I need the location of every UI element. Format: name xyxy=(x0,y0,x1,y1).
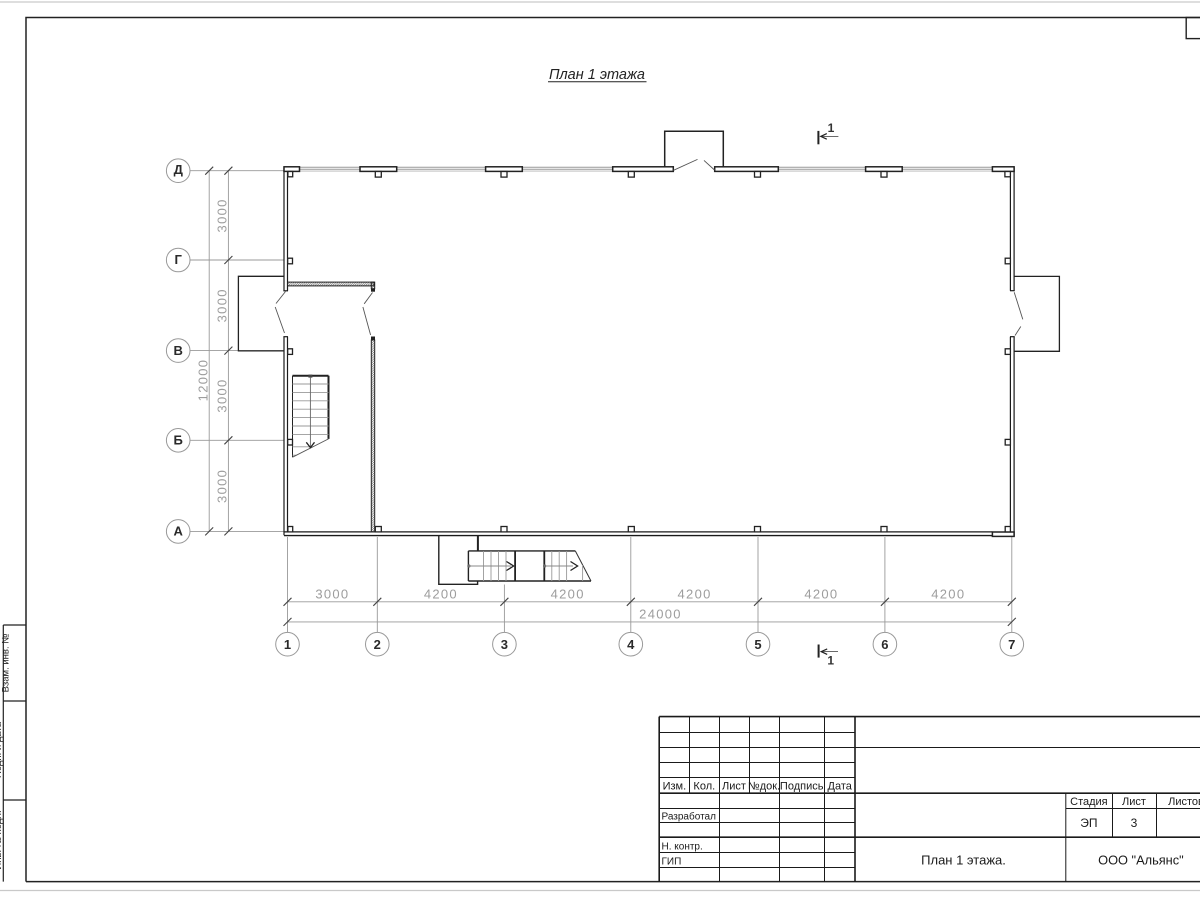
svg-text:План 1 этажа: План 1 этажа xyxy=(549,67,645,83)
svg-text:А: А xyxy=(174,524,184,539)
svg-text:Дата: Дата xyxy=(828,781,853,793)
svg-text:В: В xyxy=(174,343,183,358)
svg-text:Н. контр.: Н. контр. xyxy=(662,841,703,852)
svg-text:Б: Б xyxy=(174,433,183,448)
svg-text:24000: 24000 xyxy=(639,607,682,622)
svg-text:12000: 12000 xyxy=(196,359,211,402)
svg-text:Стадия: Стадия xyxy=(1070,796,1108,808)
svg-text:2: 2 xyxy=(374,637,381,652)
svg-text:ООО "Альянс": ООО "Альянс" xyxy=(1098,853,1184,868)
svg-text:4200: 4200 xyxy=(931,587,965,602)
svg-text:4: 4 xyxy=(627,637,635,652)
svg-text:6: 6 xyxy=(881,637,888,652)
svg-text:3: 3 xyxy=(501,637,508,652)
svg-text:Разработал: Разработал xyxy=(662,810,717,822)
svg-text:3000: 3000 xyxy=(315,587,349,602)
svg-text:Д: Д xyxy=(174,162,184,177)
svg-text:ЭП: ЭП xyxy=(1080,816,1097,830)
svg-text:3000: 3000 xyxy=(214,469,229,503)
svg-text:Инв. № подл.: Инв. № подл. xyxy=(0,810,4,869)
svg-text:Кол.: Кол. xyxy=(693,781,715,793)
svg-text:Изм.: Изм. xyxy=(663,781,687,793)
svg-text:ГИП: ГИП xyxy=(662,856,682,867)
svg-text:3000: 3000 xyxy=(214,198,229,232)
svg-text:4200: 4200 xyxy=(678,587,712,602)
svg-text:5: 5 xyxy=(754,637,761,652)
svg-text:4200: 4200 xyxy=(804,587,838,602)
svg-text:1: 1 xyxy=(828,121,835,135)
svg-text:Подп. и дата: Подп. и дата xyxy=(0,721,4,778)
svg-text:Листов: Листов xyxy=(1168,796,1200,808)
svg-text:Подпись: Подпись xyxy=(780,781,824,793)
svg-text:Лист: Лист xyxy=(722,781,746,793)
svg-text:Г: Г xyxy=(175,252,183,267)
svg-text:1: 1 xyxy=(284,637,291,652)
svg-text:3000: 3000 xyxy=(214,378,229,412)
svg-text:3: 3 xyxy=(1131,816,1138,830)
svg-text:4200: 4200 xyxy=(424,587,458,602)
svg-text:№док.: №док. xyxy=(748,781,780,793)
svg-text:1: 1 xyxy=(827,653,834,667)
svg-text:План 1 этажа.: План 1 этажа. xyxy=(921,853,1006,868)
svg-text:Взам. инв. №: Взам. инв. № xyxy=(1,634,12,693)
svg-text:7: 7 xyxy=(1008,637,1015,652)
svg-text:4200: 4200 xyxy=(551,587,585,602)
svg-text:3000: 3000 xyxy=(214,288,229,322)
svg-text:Лист: Лист xyxy=(1122,796,1146,808)
